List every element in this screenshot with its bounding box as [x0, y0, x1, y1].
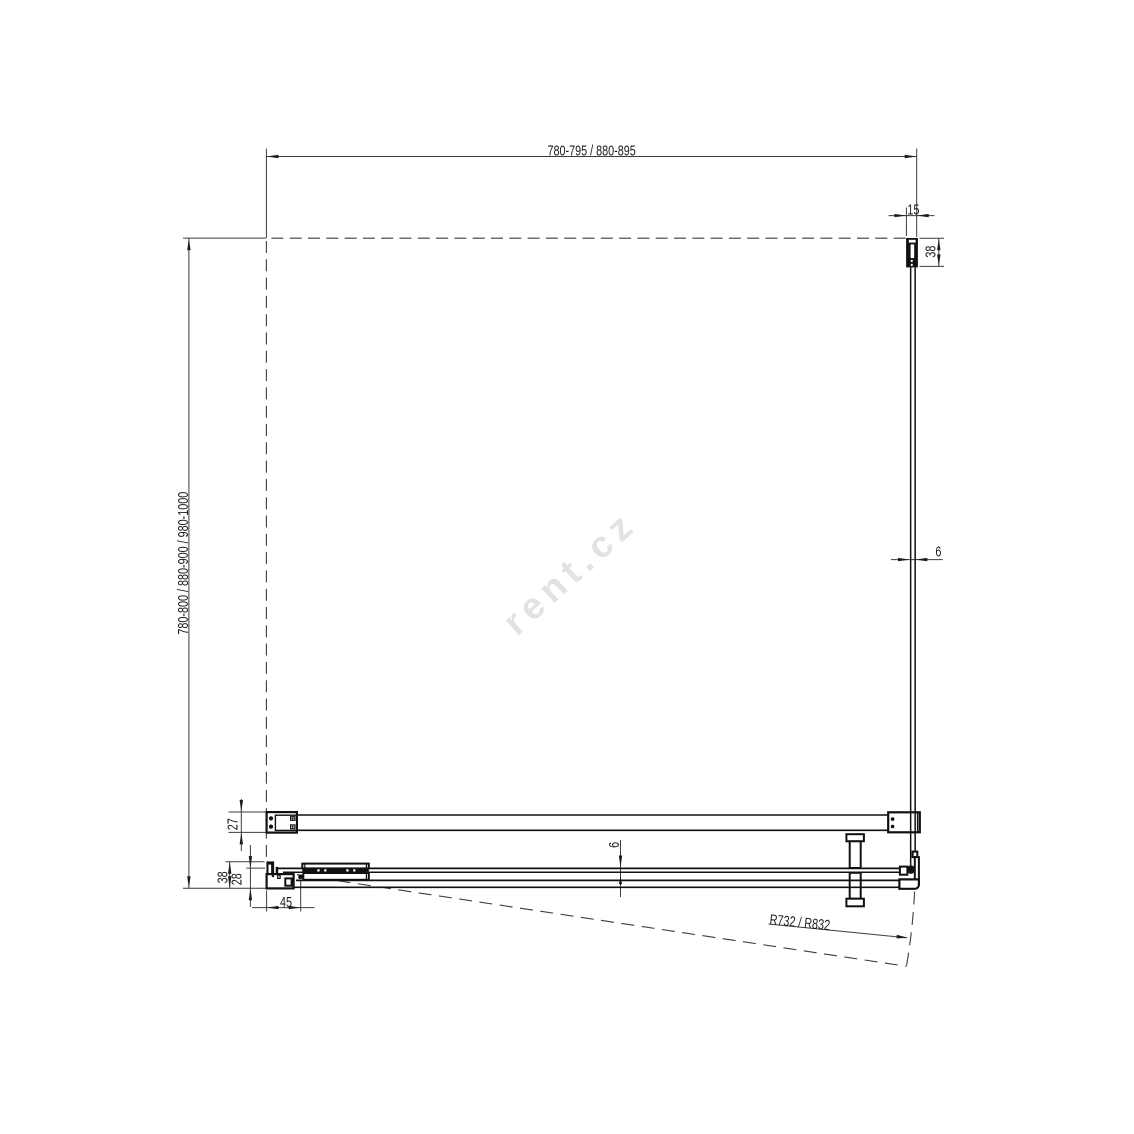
svg-text:28: 28: [228, 873, 245, 885]
svg-text:6: 6: [935, 543, 941, 560]
svg-text:15: 15: [907, 201, 919, 218]
svg-text:780-800 / 880-900 / 980-1000: 780-800 / 880-900 / 980-1000: [174, 492, 191, 635]
svg-text:38: 38: [922, 246, 939, 258]
svg-text:27: 27: [224, 818, 241, 830]
svg-text:6: 6: [605, 842, 622, 848]
svg-text:45: 45: [280, 893, 292, 910]
svg-text:780-795 / 880-895: 780-795 / 880-895: [547, 142, 635, 159]
